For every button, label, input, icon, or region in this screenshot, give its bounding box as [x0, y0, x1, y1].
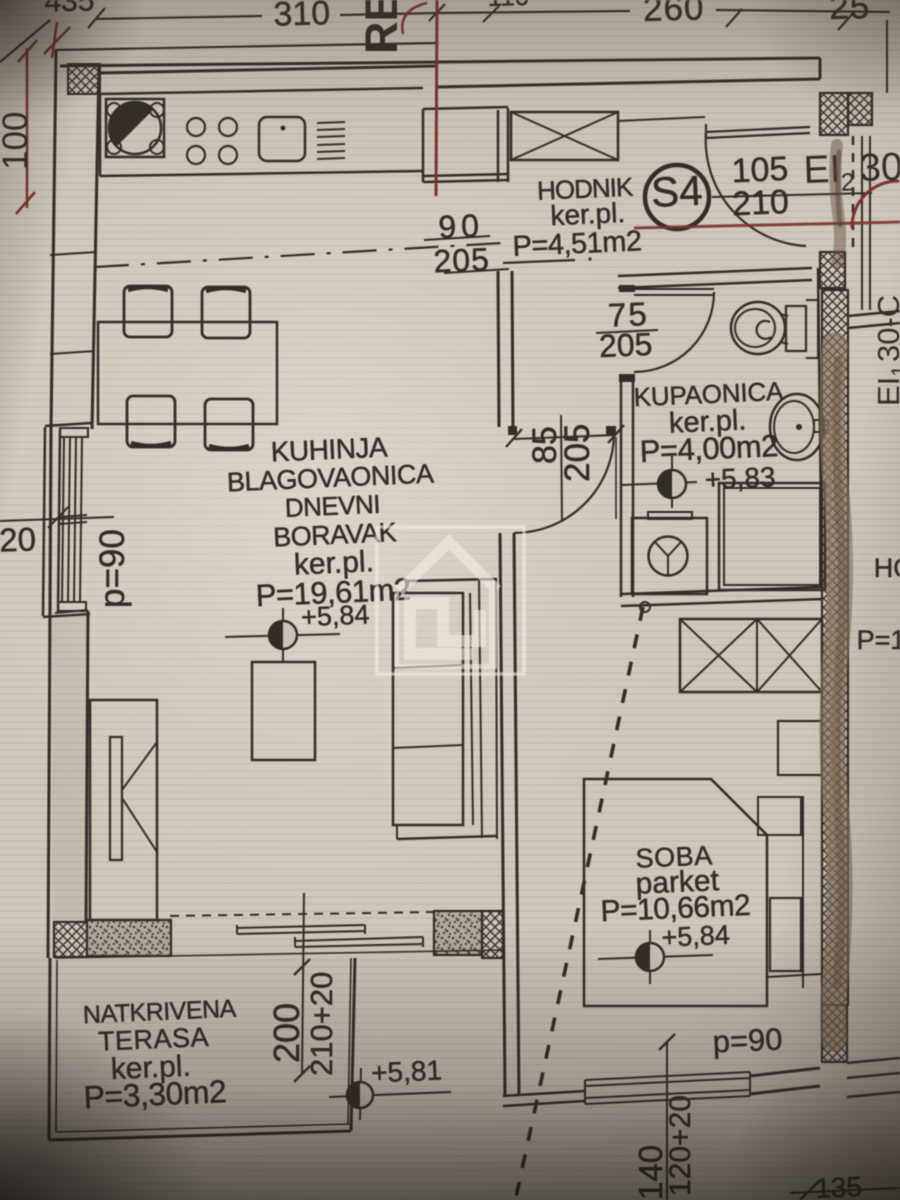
svg-text:20: 20	[0, 520, 37, 558]
svg-text:+5,83: +5,83	[704, 461, 776, 495]
svg-text:205: 205	[433, 241, 491, 279]
svg-text:HO: HO	[874, 553, 900, 583]
svg-text:P=3,30m2: P=3,30m2	[83, 1073, 227, 1115]
svg-text:+5,84: +5,84	[661, 920, 731, 953]
svg-text:205: 205	[598, 326, 653, 364]
svg-text:S4: S4	[650, 167, 703, 216]
svg-text:EI230: EI230	[803, 146, 900, 198]
svg-text:90: 90	[438, 207, 485, 245]
svg-text:435: 435	[44, 0, 95, 19]
svg-text:P=1: P=1	[857, 625, 900, 655]
svg-text:310: 310	[273, 0, 331, 34]
svg-text:110: 110	[487, 0, 529, 12]
svg-text:+5,81: +5,81	[371, 1054, 443, 1088]
svg-text:135: 135	[815, 1171, 863, 1200]
svg-text:P=4,51m2: P=4,51m2	[512, 225, 642, 263]
svg-text:120+20: 120+20	[664, 1095, 697, 1196]
svg-text:EI130-C: EI130-C	[871, 295, 900, 406]
svg-text:100: 100	[0, 112, 35, 170]
svg-text:200: 200	[266, 1003, 307, 1063]
svg-text:210+20: 210+20	[304, 972, 339, 1076]
svg-text:205: 205	[558, 424, 597, 482]
svg-text:p=90: p=90	[712, 1022, 783, 1060]
svg-text:+5,84: +5,84	[300, 599, 370, 632]
svg-text:25: 25	[829, 0, 871, 27]
svg-text:p=90: p=90	[93, 529, 132, 608]
svg-text:RE: RE	[356, 0, 407, 54]
svg-text:260: 260	[643, 0, 705, 29]
svg-text:210: 210	[731, 183, 789, 223]
